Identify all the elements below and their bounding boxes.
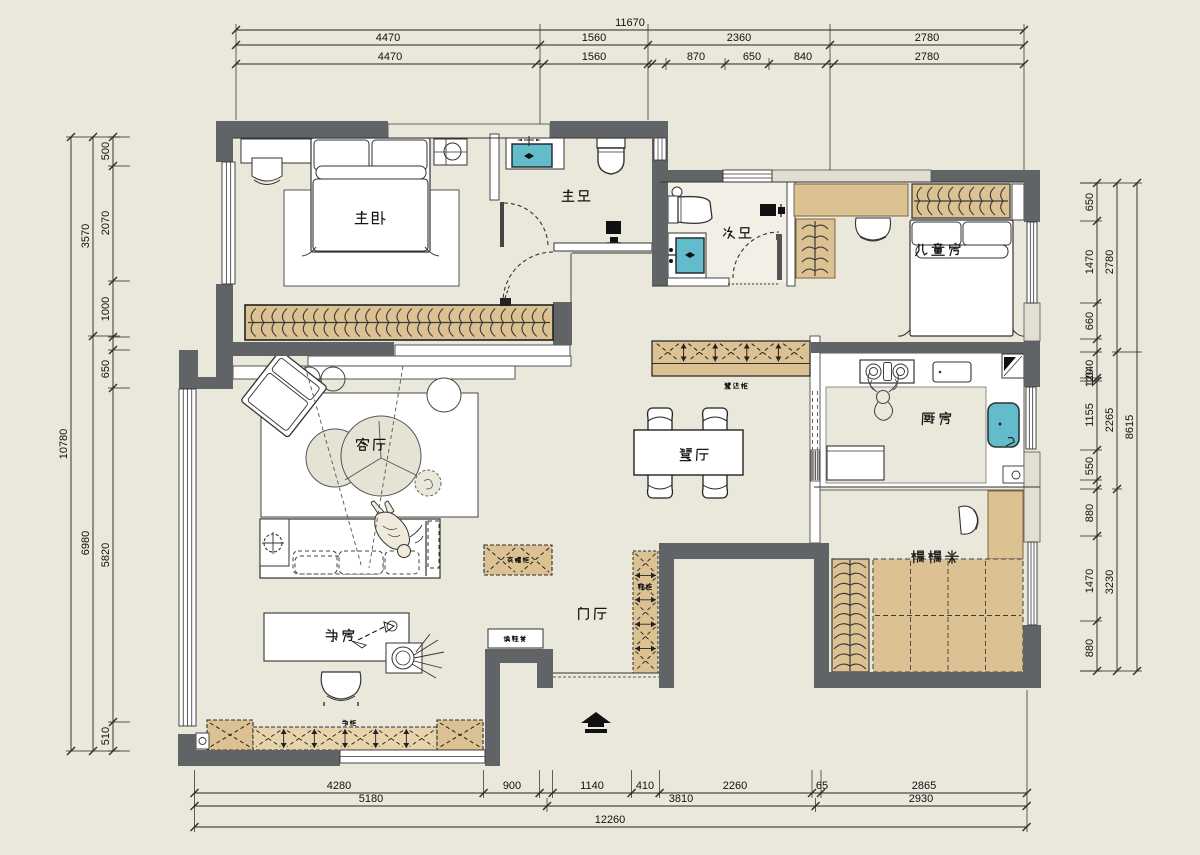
svg-text:500: 500 (100, 142, 112, 160)
svg-text:2930: 2930 (909, 793, 933, 805)
svg-text:650: 650 (1084, 193, 1096, 211)
svg-text:4470: 4470 (376, 32, 400, 44)
svg-text:3570: 3570 (80, 224, 92, 248)
svg-text:2265: 2265 (1104, 408, 1116, 432)
svg-text:2865: 2865 (912, 780, 936, 792)
svg-text:2780: 2780 (915, 32, 939, 44)
svg-text:1140: 1140 (580, 780, 604, 792)
svg-text:650: 650 (100, 360, 112, 378)
svg-text:410: 410 (636, 780, 654, 792)
svg-text:650: 650 (743, 51, 761, 63)
svg-text:6980: 6980 (80, 531, 92, 555)
svg-text:3810: 3810 (669, 793, 693, 805)
svg-text:880: 880 (1084, 639, 1096, 657)
svg-text:1470: 1470 (1084, 569, 1096, 593)
svg-text:840: 840 (794, 51, 812, 63)
svg-text:2780: 2780 (1104, 250, 1116, 274)
svg-text:1560: 1560 (582, 51, 606, 63)
svg-text:5180: 5180 (359, 793, 383, 805)
svg-text:510: 510 (100, 727, 112, 745)
svg-text:4470: 4470 (378, 51, 402, 63)
svg-text:1000: 1000 (100, 297, 112, 321)
svg-text:660: 660 (1084, 312, 1096, 330)
svg-text:870: 870 (687, 51, 705, 63)
svg-text:3230: 3230 (1104, 570, 1116, 594)
svg-text:1560: 1560 (582, 32, 606, 44)
svg-text:10780: 10780 (58, 429, 70, 460)
svg-text:1470: 1470 (1084, 250, 1096, 274)
svg-text:1155: 1155 (1084, 403, 1096, 427)
svg-text:880: 880 (1084, 504, 1096, 522)
svg-text:2780: 2780 (915, 51, 939, 63)
svg-text:900: 900 (503, 780, 521, 792)
svg-text:2360: 2360 (727, 32, 751, 44)
svg-text:5820: 5820 (100, 543, 112, 567)
svg-text:11670: 11670 (615, 17, 645, 29)
svg-text:4280: 4280 (327, 780, 351, 792)
svg-text:2260: 2260 (723, 780, 747, 792)
svg-text:2070: 2070 (100, 211, 112, 235)
svg-text:8615: 8615 (1124, 415, 1136, 439)
svg-text:12260: 12260 (595, 814, 626, 826)
svg-text:550: 550 (1084, 457, 1096, 475)
svg-text:65: 65 (816, 780, 828, 792)
